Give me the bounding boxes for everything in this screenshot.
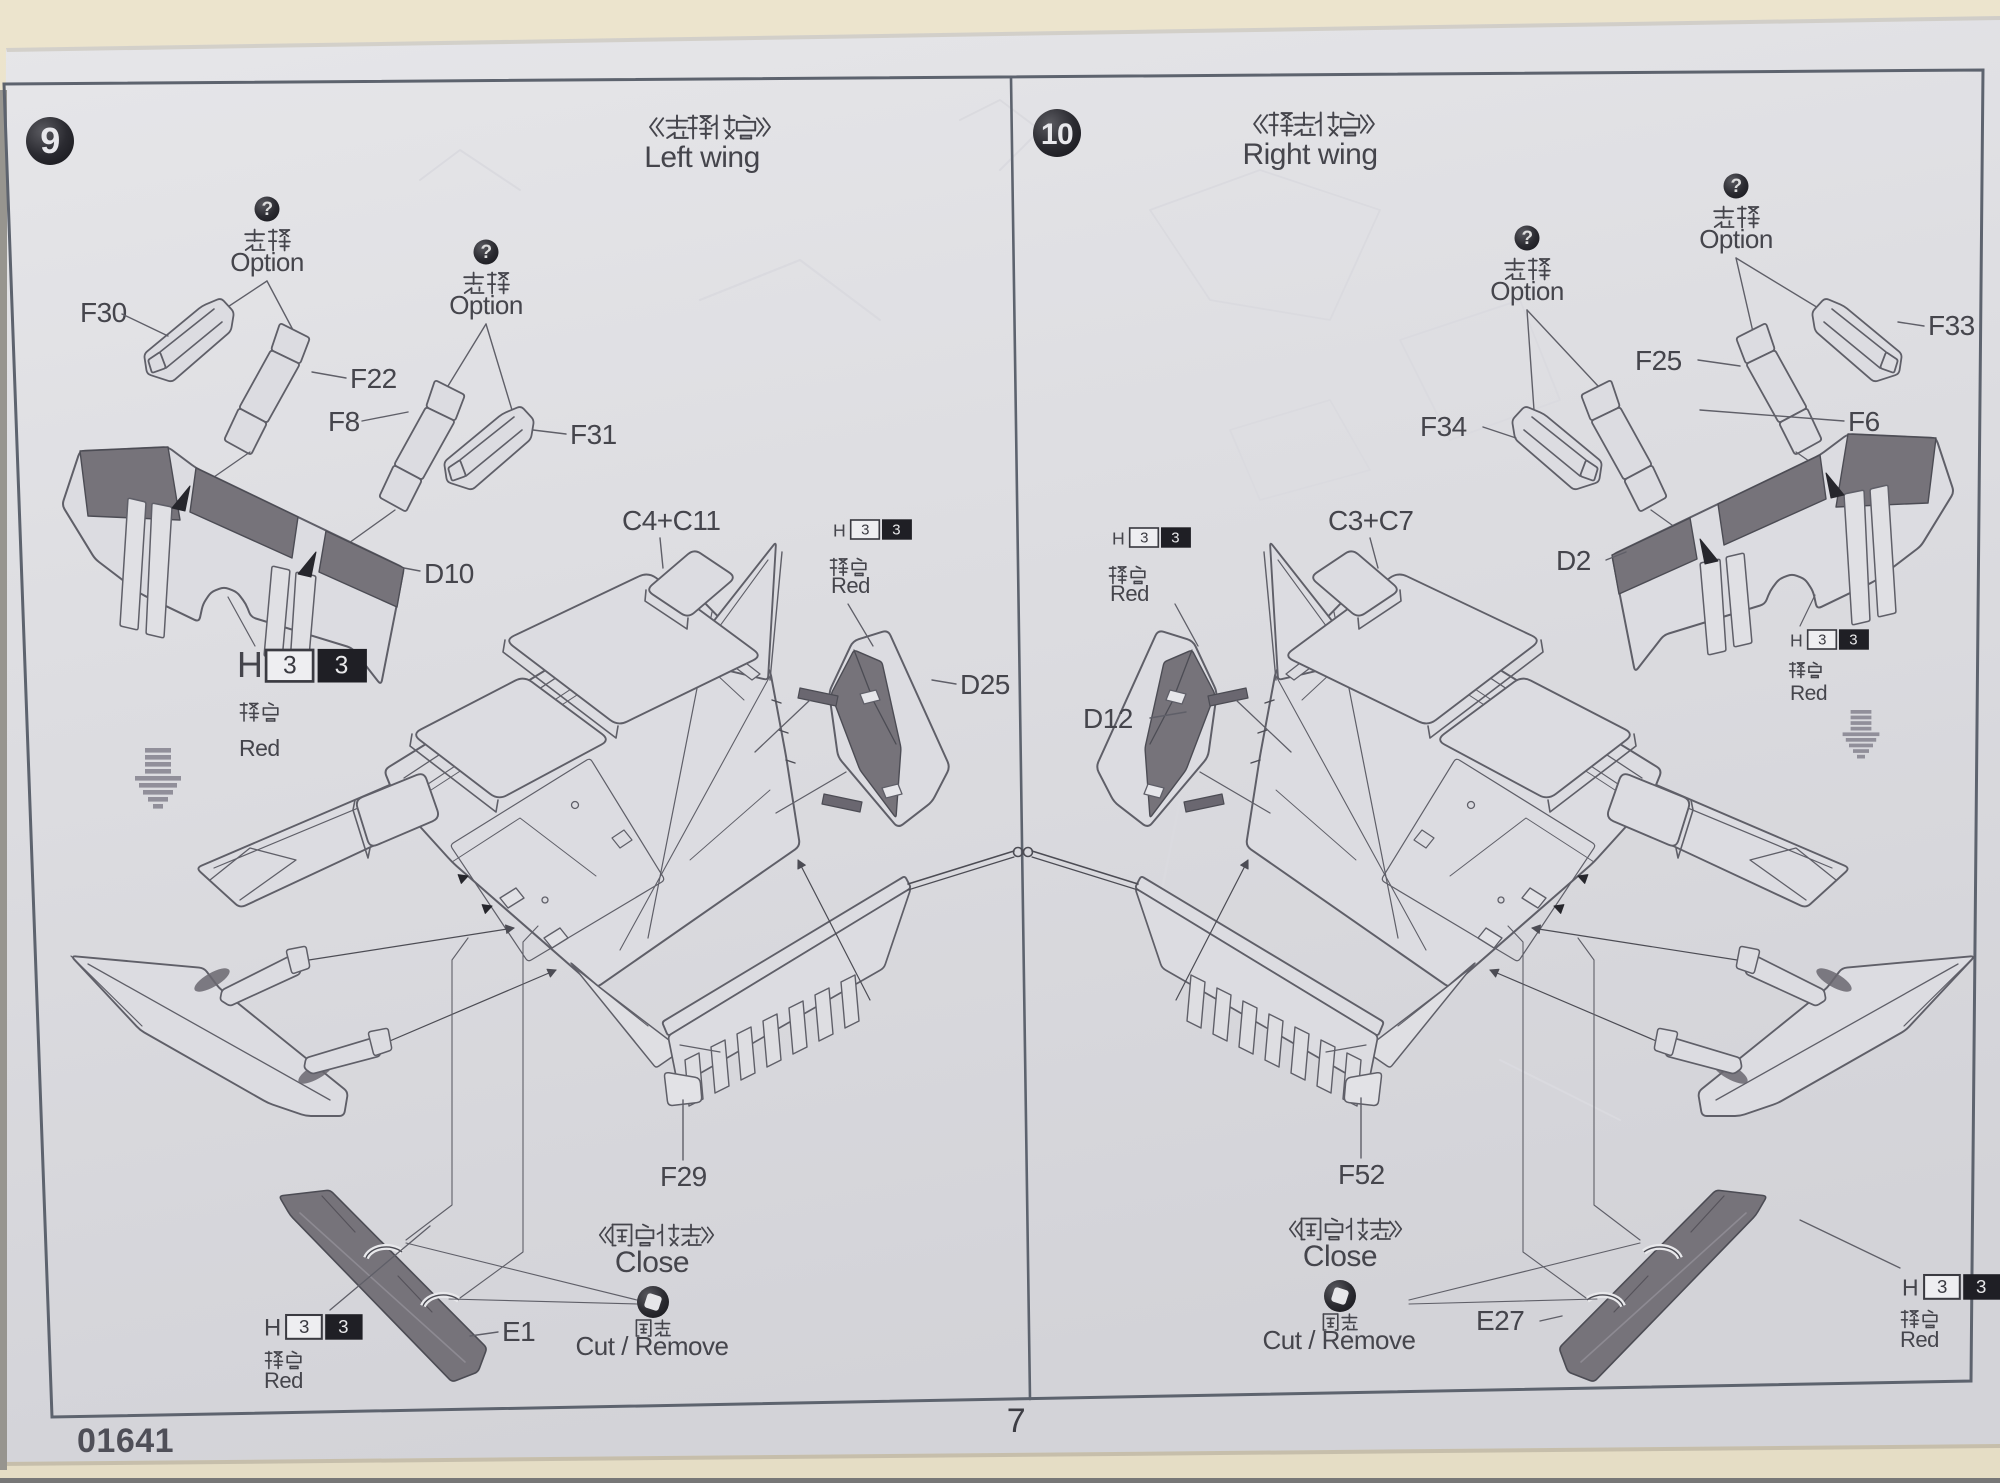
svg-text:H: H <box>237 645 262 685</box>
svg-text:7: 7 <box>1007 1402 1025 1440</box>
svg-text:Red: Red <box>1790 682 1827 705</box>
svg-text:Cut / Remove: Cut / Remove <box>576 1331 729 1361</box>
svg-text:Cut / Remove: Cut / Remove <box>1263 1325 1416 1355</box>
svg-text:D12: D12 <box>1083 703 1133 734</box>
svg-text:3: 3 <box>1171 529 1179 546</box>
svg-text:H: H <box>833 520 845 540</box>
svg-text:Left wing: Left wing <box>644 141 760 174</box>
svg-text:Red: Red <box>239 735 280 761</box>
svg-text:?: ? <box>480 242 491 263</box>
svg-text:3: 3 <box>335 653 348 680</box>
svg-text:F22: F22 <box>350 363 397 394</box>
svg-text:C4+C11: C4+C11 <box>622 505 720 536</box>
svg-text:D25: D25 <box>960 669 1010 700</box>
svg-text:Option: Option <box>1699 224 1773 254</box>
svg-text:Option: Option <box>230 247 304 277</box>
svg-text:Right wing: Right wing <box>1242 138 1377 171</box>
svg-text:F33: F33 <box>1928 310 1975 341</box>
svg-text:H: H <box>264 1314 281 1341</box>
svg-text:?: ? <box>261 199 272 220</box>
svg-text:3: 3 <box>338 1316 348 1337</box>
svg-text:?: ? <box>1521 228 1532 249</box>
svg-text:H: H <box>1112 528 1124 548</box>
svg-text:Red: Red <box>264 1368 303 1393</box>
svg-text:E1: E1 <box>502 1316 535 1347</box>
svg-text:E27: E27 <box>1476 1305 1524 1336</box>
svg-text:3: 3 <box>861 521 869 538</box>
svg-text:Close: Close <box>615 1246 689 1279</box>
svg-text:Close: Close <box>1303 1240 1377 1273</box>
svg-text:3: 3 <box>1140 529 1148 546</box>
svg-text:F31: F31 <box>570 419 617 450</box>
svg-text:01641: 01641 <box>77 1422 174 1460</box>
svg-text:Option: Option <box>449 290 523 320</box>
svg-text:3: 3 <box>1849 631 1857 648</box>
svg-text:3: 3 <box>1818 631 1826 648</box>
svg-text:F25: F25 <box>1635 345 1682 376</box>
svg-text:H: H <box>1902 1274 1918 1300</box>
svg-text:F6: F6 <box>1848 406 1880 437</box>
svg-text:?: ? <box>1730 176 1741 197</box>
svg-text:3: 3 <box>299 1316 309 1337</box>
svg-text:F30: F30 <box>80 297 127 328</box>
svg-text:Option: Option <box>1490 276 1564 306</box>
svg-text:10: 10 <box>1041 118 1073 151</box>
svg-text:3: 3 <box>1937 1276 1947 1297</box>
svg-text:F34: F34 <box>1420 411 1467 442</box>
svg-text:F8: F8 <box>328 406 360 437</box>
svg-text:3: 3 <box>283 653 296 680</box>
svg-text:H: H <box>1790 630 1802 650</box>
svg-text:D10: D10 <box>424 558 474 589</box>
svg-text:3: 3 <box>892 521 900 538</box>
svg-text:C3+C7: C3+C7 <box>1328 505 1413 536</box>
svg-text:3: 3 <box>1976 1276 1986 1297</box>
svg-text:Red: Red <box>1110 581 1149 606</box>
svg-text:F52: F52 <box>1338 1159 1385 1190</box>
svg-text:9: 9 <box>40 120 60 161</box>
svg-text:Red: Red <box>831 573 870 598</box>
svg-text:F29: F29 <box>660 1161 707 1192</box>
svg-text:D2: D2 <box>1556 545 1591 576</box>
svg-text:Red: Red <box>1900 1327 1939 1352</box>
